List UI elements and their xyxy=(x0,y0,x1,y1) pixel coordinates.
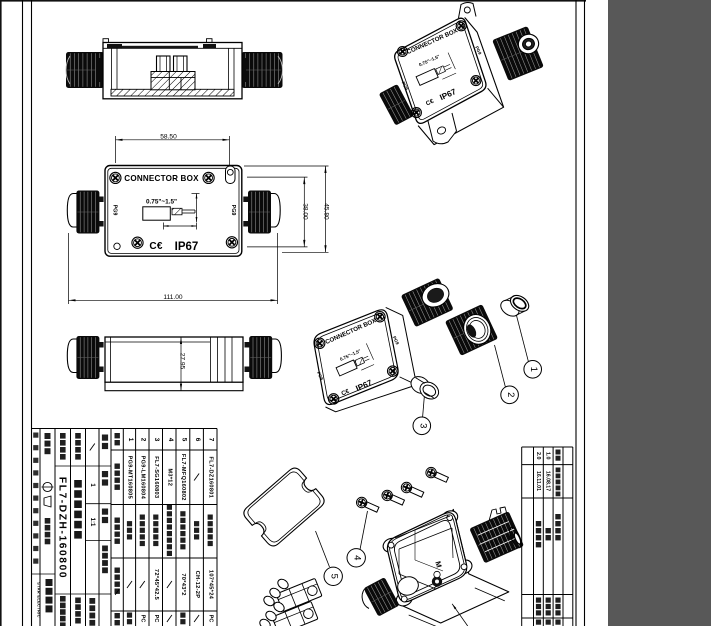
svg-text:CH-12-2P: CH-12-2P xyxy=(194,571,200,599)
svg-text:3: 3 xyxy=(153,438,160,442)
svg-text:5: 5 xyxy=(329,574,340,579)
svg-text:2: 2 xyxy=(140,438,147,442)
svg-text:58.50: 58.50 xyxy=(160,134,177,141)
svg-text:PG9-LM160804: PG9-LM160804 xyxy=(140,456,146,500)
svg-text:16.11.01: 16.11.01 xyxy=(535,471,541,491)
svg-text:6: 6 xyxy=(194,438,201,442)
svg-text:2.0: 2.0 xyxy=(535,452,541,460)
svg-text:FL7-DZH-160800: FL7-DZH-160800 xyxy=(56,477,67,579)
svg-text:STAR ELECTRIC: STAR ELECTRIC xyxy=(37,582,42,618)
svg-text:FL7-MFQ160802: FL7-MFQ160802 xyxy=(180,454,186,501)
svg-text:PG9-MT160805: PG9-MT160805 xyxy=(127,456,133,499)
svg-text:IP67: IP67 xyxy=(175,241,199,253)
svg-text:PG9: PG9 xyxy=(112,205,118,216)
svg-text:FL7-SG160803: FL7-SG160803 xyxy=(153,456,159,498)
svg-text:27.95: 27.95 xyxy=(178,353,185,370)
svg-text:38.00: 38.00 xyxy=(302,203,309,220)
svg-text:1.0: 1.0 xyxy=(545,452,551,460)
svg-text:PC: PC xyxy=(207,615,213,623)
svg-text:107*45*24: 107*45*24 xyxy=(207,570,213,600)
svg-text:70*43*2: 70*43*2 xyxy=(180,573,186,595)
svg-text:72*45*42.5: 72*45*42.5 xyxy=(153,569,159,600)
svg-text:1: 1 xyxy=(127,438,134,442)
svg-text:1: 1 xyxy=(528,367,539,372)
svg-text:7: 7 xyxy=(208,438,215,442)
svg-text:C€: C€ xyxy=(149,241,162,252)
svg-text:CONNECTOR BOX: CONNECTOR BOX xyxy=(124,174,199,183)
svg-text:0.75"~1.5": 0.75"~1.5" xyxy=(146,198,177,205)
svg-text:PC: PC xyxy=(140,615,146,623)
svg-text:111.00: 111.00 xyxy=(163,294,183,301)
svg-text:PG9: PG9 xyxy=(230,205,236,216)
svg-text:5: 5 xyxy=(180,438,187,442)
svg-text:PC: PC xyxy=(153,615,159,623)
svg-text:M3*12: M3*12 xyxy=(167,468,173,486)
svg-text:4: 4 xyxy=(352,555,363,560)
svg-text:1:1: 1:1 xyxy=(89,518,95,527)
svg-text:2: 2 xyxy=(505,392,516,397)
svg-text:3: 3 xyxy=(417,423,428,428)
svg-text:45.80: 45.80 xyxy=(323,203,330,220)
svg-text:FL7-DZ160801: FL7-DZ160801 xyxy=(207,457,213,499)
svg-text:16.08.17: 16.08.17 xyxy=(545,471,551,491)
svg-text:4: 4 xyxy=(167,438,174,442)
